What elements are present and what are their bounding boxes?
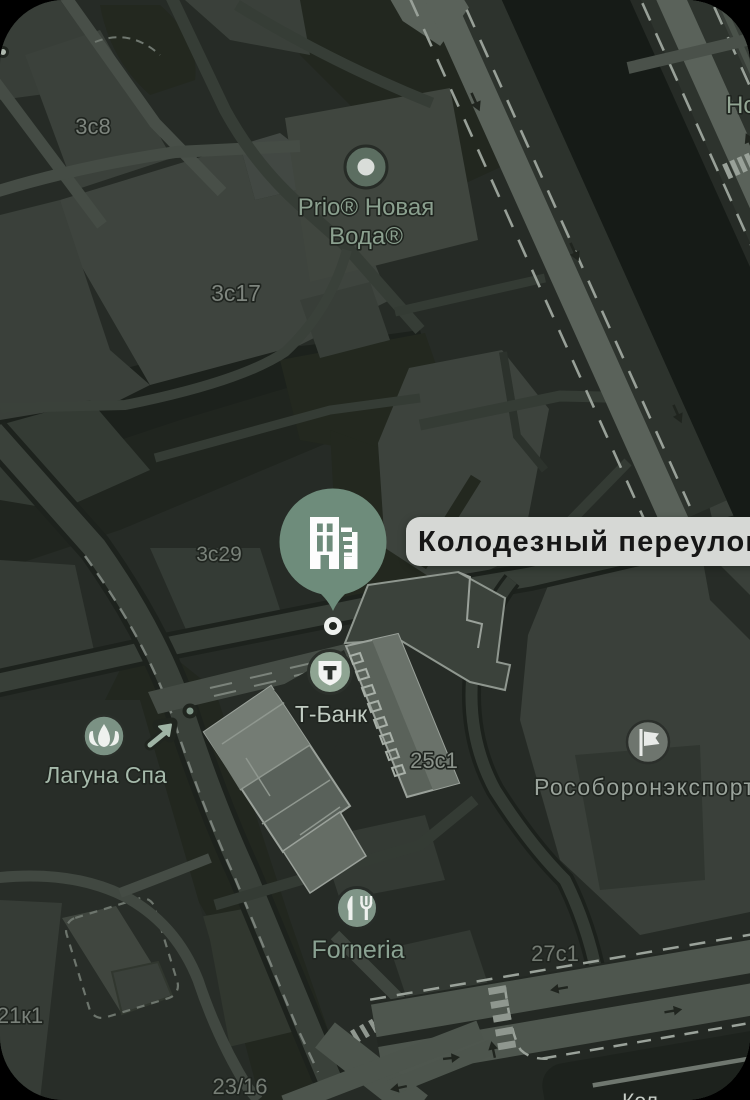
svg-text:21к1: 21к1: [0, 1003, 43, 1028]
svg-text:23/16: 23/16: [212, 1074, 267, 1099]
svg-text:Prio® Новая: Prio® Новая: [298, 194, 435, 221]
svg-text:Вода®: Вода®: [329, 223, 403, 250]
svg-text:Но: Но: [726, 92, 750, 119]
svg-text:27с1: 27с1: [531, 941, 579, 966]
svg-text:Рособоронэкспорт: Рособоронэкспорт: [534, 774, 750, 800]
svg-text:3с8: 3с8: [75, 114, 110, 139]
svg-text:Кол: Кол: [622, 1090, 658, 1100]
svg-text:3с29: 3с29: [196, 543, 242, 566]
svg-text:Лагуна Спа: Лагуна Спа: [45, 762, 167, 788]
svg-text:25с1: 25с1: [410, 748, 458, 773]
svg-text:Т-Банк: Т-Банк: [295, 701, 368, 727]
svg-text:3с17: 3с17: [211, 280, 261, 306]
svg-text:Forneria: Forneria: [311, 936, 404, 964]
